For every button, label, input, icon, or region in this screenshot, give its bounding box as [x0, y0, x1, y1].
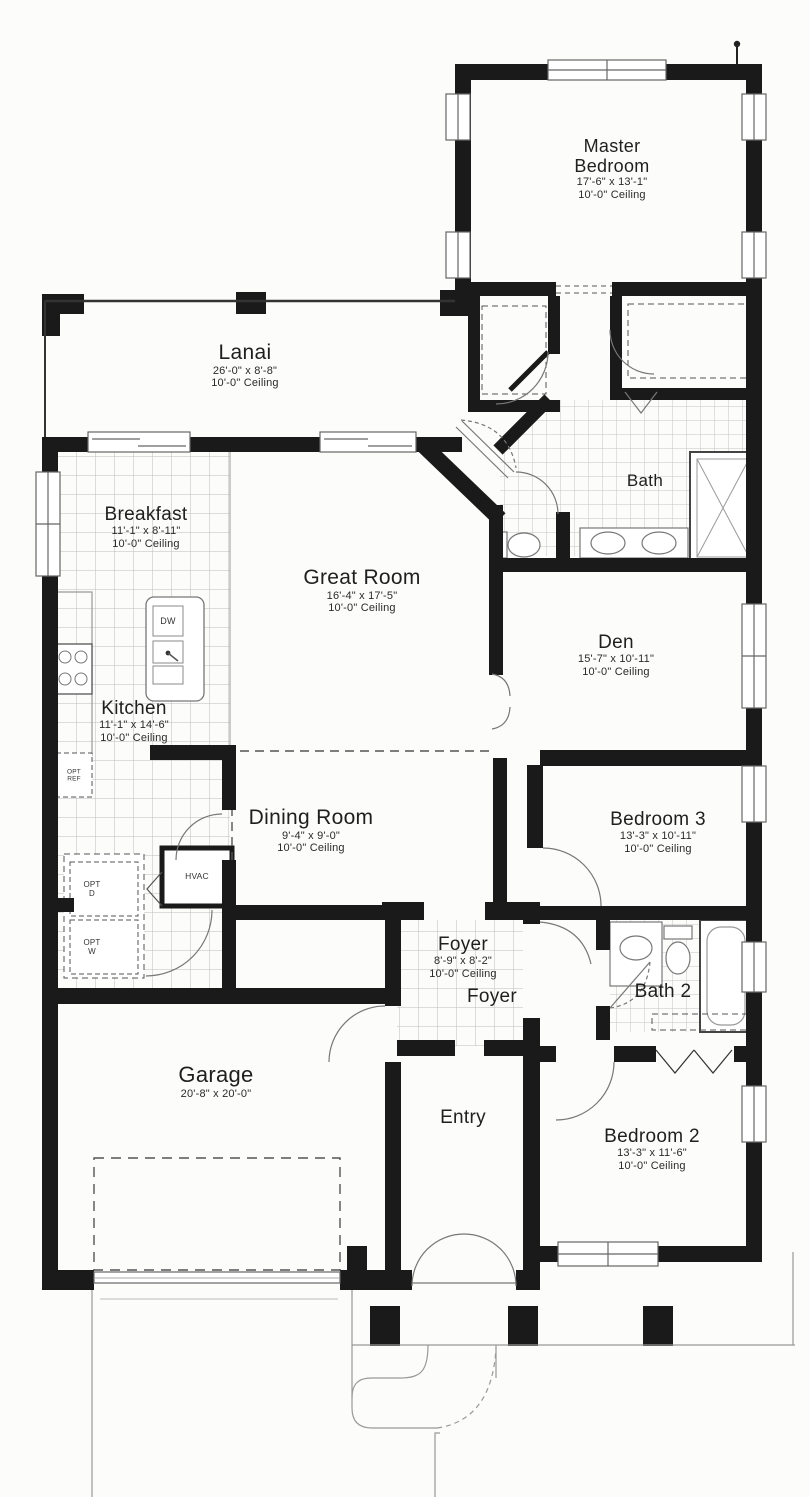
porch-column [643, 1306, 673, 1346]
hall-door-arc [540, 922, 591, 964]
master-left-window-2 [446, 232, 470, 278]
bath2-window [742, 942, 766, 992]
den-window [742, 604, 766, 708]
porch-column [370, 1306, 400, 1346]
master-top-window [548, 60, 666, 80]
master-left-window-1 [446, 94, 470, 140]
room-label-bedroom2: Bedroom 2 13'-3" x 11'-6" 10'-0" Ceiling [604, 1126, 700, 1172]
floor-plan: Master Bedroom 17'-6" x 13'-1" 10'-0" Ce… [0, 0, 810, 1497]
porch-column [508, 1306, 538, 1346]
room-label-garage: Garage 20'-8" x 20'-0" [178, 1063, 253, 1100]
bedroom2-door-arc [556, 1062, 614, 1120]
room-label-foyer: Foyer 8'-9" x 8'-2" 10'-0" Ceiling [429, 934, 497, 980]
garage-door-clearance [94, 1158, 340, 1270]
front-door-arc [464, 1234, 516, 1286]
room-label-entry: Entry [440, 1107, 486, 1128]
room-label-dining: Dining Room 9'-4" x 9'-0" 10'-0" Ceiling [249, 806, 374, 854]
toilet [664, 926, 692, 974]
hvac-label: HVAC [185, 872, 209, 882]
bifold-closet-doors [656, 1050, 732, 1073]
double-vanity [580, 528, 688, 558]
garage-entry-door-arc [329, 1006, 385, 1062]
room-label-bedroom3: Bedroom 3 13'-3" x 10'-11" 10'-0" Ceilin… [610, 809, 706, 855]
room-label-breakfast: Breakfast 11'-1" x 8'-11" 10'-0" Ceiling [105, 504, 188, 550]
greatroom-slider-door [320, 432, 416, 452]
floor-plan-drawing [0, 0, 810, 1497]
front-door-arc [412, 1234, 464, 1286]
breakfast-window [36, 472, 60, 576]
opt-dryer-label: OPT D [80, 880, 104, 898]
room-label-master: Master Bedroom 17'-6" x 13'-1" 10'-0" Ce… [552, 136, 672, 201]
master-door-opening [556, 286, 612, 293]
master-right-window-2 [742, 232, 766, 278]
room-label-bath2: Bath 2 [635, 981, 692, 1002]
opt-washer-label: OPT W [80, 938, 104, 956]
cased-opening-mark [492, 674, 510, 696]
cased-opening-mark [492, 707, 510, 729]
dishwasher-label: DW [160, 616, 175, 626]
walkway-driveway [92, 1290, 496, 1497]
opt-ref-label: OPT REF [61, 769, 87, 784]
bedroom2-right-window [742, 1086, 766, 1142]
room-label-foyer-2: Foyer [467, 986, 517, 1007]
room-label-lanai: Lanai 26'-0" x 8'-8" 10'-0" Ceiling [211, 341, 279, 389]
bedroom2-bottom-window [558, 1242, 658, 1266]
room-label-great-room: Great Room 16'-4" x 17'-5" 10'-0" Ceilin… [303, 566, 420, 614]
bedroom3-window [742, 766, 766, 822]
lanai-slider-door [88, 432, 190, 452]
master-right-window-1 [742, 94, 766, 140]
stove [54, 644, 92, 694]
vanity-sink [610, 922, 662, 986]
room-label-den: Den 15'-7" x 10'-11" 10'-0" Ceiling [578, 632, 654, 678]
bedroom3-door-arc [543, 848, 601, 906]
room-label-bath: Bath [627, 471, 663, 490]
room-label-kitchen: Kitchen 11'-1" x 14'-6" 10'-0" Ceiling [99, 698, 169, 744]
kitchen-island [146, 597, 204, 701]
garage-door [94, 1272, 340, 1299]
